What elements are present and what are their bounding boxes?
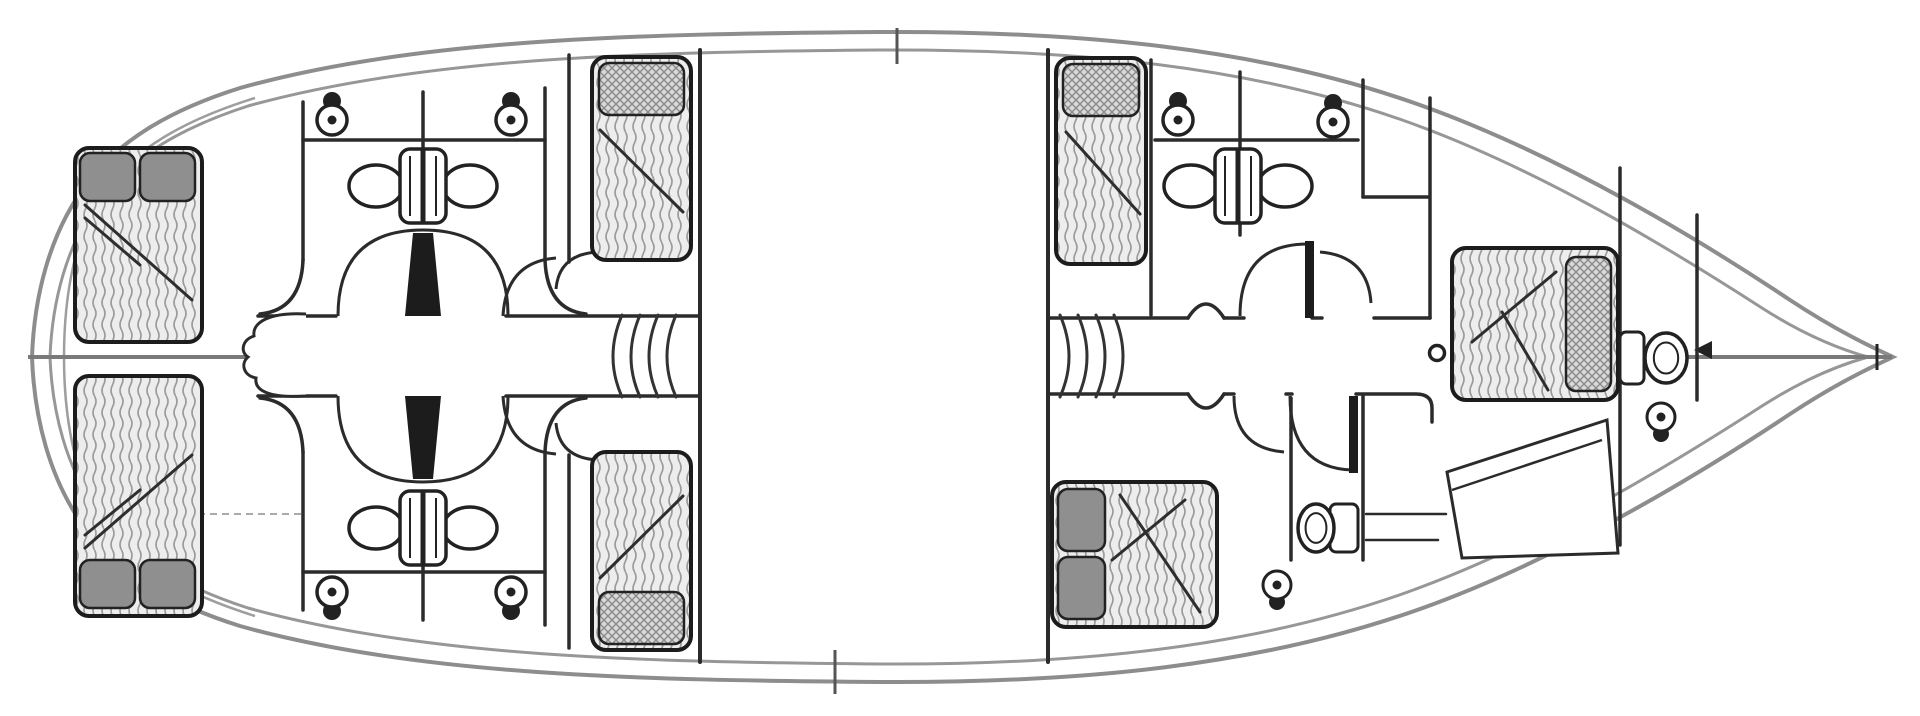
pillow bbox=[1058, 557, 1105, 619]
pillow bbox=[140, 153, 195, 201]
wall-shoulder bbox=[260, 260, 303, 314]
door-knob bbox=[1430, 346, 1445, 361]
aft-starboard-double-bed: aft-starboard-double-bed bbox=[75, 376, 202, 616]
door-arc bbox=[556, 423, 598, 460]
double-washbasin-forward: double-washbasin-forward bbox=[1164, 149, 1312, 223]
forward-starboard-double-bed: forward-starboard-double-bed bbox=[1052, 482, 1217, 627]
wc-forward-port-1: wc-forward-port-1 bbox=[1163, 92, 1193, 135]
pillow bbox=[599, 592, 684, 644]
floor-plan-canvas: sailing-yacht-lower-deck-floor-plan bbox=[0, 0, 1920, 716]
wc-aft-starboard-2: wc-aft-starboard-2 bbox=[496, 577, 526, 620]
wc-bow: wc-bow bbox=[1620, 332, 1687, 384]
pillow bbox=[80, 153, 135, 201]
midship-starboard-single-bed: midship-starboard-single-bed bbox=[592, 452, 691, 650]
corridor-curtain-scallop bbox=[243, 314, 306, 397]
pillow bbox=[80, 560, 135, 608]
door-arc bbox=[1290, 396, 1352, 470]
door-arc bbox=[1234, 396, 1284, 452]
pillow bbox=[1063, 64, 1139, 116]
wc-aft-port-1: wc-aft-port-1 bbox=[317, 92, 347, 135]
double-washbasin-aft-starboard: double-washbasin-aft-starboard bbox=[349, 491, 497, 565]
wc-aft-port-2: wc-aft-port-2 bbox=[496, 92, 526, 135]
pillow bbox=[1566, 257, 1611, 391]
door-arc bbox=[503, 258, 556, 316]
door-arc bbox=[556, 252, 598, 289]
corridor-bump bbox=[1188, 394, 1224, 408]
corridor-bump bbox=[1188, 304, 1224, 318]
bow-seat bbox=[1447, 420, 1618, 558]
midship-port-single-bed: midship-port-single-bed bbox=[592, 57, 691, 260]
washbasin-bow: washbasin-bow bbox=[1647, 403, 1675, 442]
pillow bbox=[140, 560, 195, 608]
wall-shoulder bbox=[260, 398, 303, 452]
companionway-steps-starboard: companionway-steps-starboard bbox=[1060, 315, 1123, 397]
door-arc bbox=[503, 396, 556, 454]
bow-double-bed: bow-double-bed bbox=[1452, 248, 1618, 400]
forward-port-single-bed: forward-port-single-bed bbox=[1056, 58, 1146, 264]
wc-aft-starboard-1: wc-aft-starboard-1 bbox=[317, 577, 347, 620]
pillow bbox=[599, 63, 684, 115]
wc-forward-starboard: wc-forward-starboard bbox=[1298, 504, 1358, 552]
door-arc bbox=[1320, 252, 1371, 303]
door-leaf bbox=[405, 233, 441, 316]
aft-port-double-bed: aft-port-double-bed bbox=[75, 148, 202, 342]
washbasin-forward-starboard: washbasin-forward-starboard bbox=[1263, 571, 1291, 610]
doors bbox=[338, 230, 1445, 482]
bow-seat-outline bbox=[1447, 420, 1618, 558]
companionway-steps-port: companionway-steps-port bbox=[613, 315, 676, 397]
door-leaf bbox=[1305, 241, 1314, 318]
pillow bbox=[1058, 489, 1105, 551]
yacht-deck-plan: sailing-yacht-lower-deck-floor-plan bbox=[0, 0, 1920, 716]
door-leaf bbox=[1349, 396, 1358, 473]
door-arc bbox=[1240, 244, 1308, 316]
wall-shoulder bbox=[545, 260, 586, 314]
double-washbasin-aft-port: double-washbasin-aft-port bbox=[349, 149, 497, 223]
wall-shoulder bbox=[545, 398, 586, 452]
door-leaf bbox=[405, 396, 441, 479]
corridor-wall bbox=[1356, 394, 1432, 422]
